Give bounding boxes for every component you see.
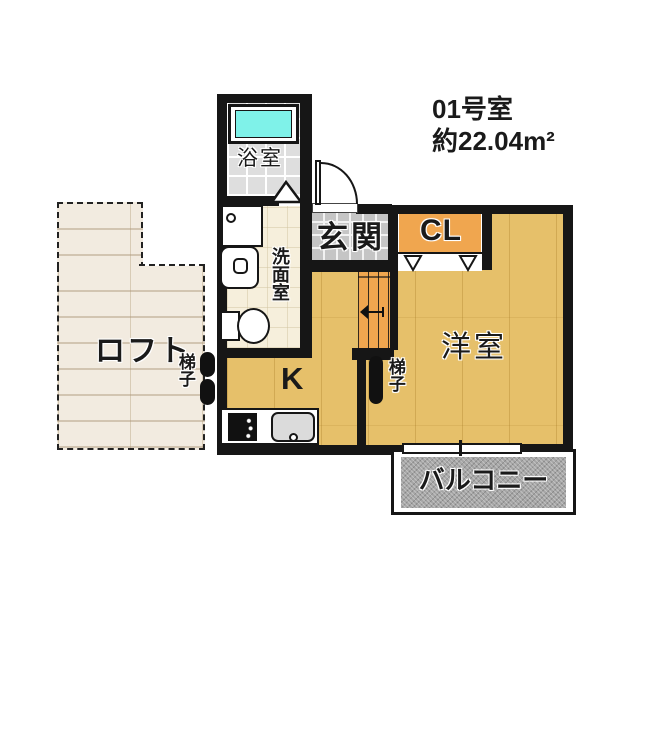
- folding-door-icon: [403, 255, 423, 272]
- wall: [356, 204, 392, 214]
- unit-area: 約22.04m²: [432, 128, 555, 155]
- wall: [357, 358, 366, 445]
- western-room-label: 洋室: [441, 332, 507, 364]
- closet-folding-doors: [398, 252, 482, 271]
- ladder-loft-label: 梯子: [176, 353, 194, 387]
- balcony-label: バルコニー: [405, 467, 562, 494]
- kitchen-counter: [220, 408, 319, 445]
- bathroom-label: 浴室: [237, 148, 283, 170]
- wall: [482, 211, 492, 270]
- entrance-label: 玄関: [317, 222, 385, 255]
- ladder-icon-loft: [200, 352, 215, 377]
- wall: [563, 205, 573, 455]
- loft-floor-upper: [57, 202, 143, 268]
- folding-door-icon: [458, 255, 478, 272]
- ladder-icon-loft: [200, 379, 215, 405]
- entrance-step: [306, 260, 398, 272]
- ladder-room-label: 梯子: [386, 358, 404, 392]
- washbasin-bowl: [233, 258, 248, 274]
- sink-faucet: [289, 433, 298, 442]
- washing-machine: [221, 205, 263, 247]
- bathtub: [228, 104, 299, 144]
- kitchen-label: K: [281, 363, 303, 396]
- loft-border-seam: [139, 264, 205, 266]
- wall: [217, 94, 312, 103]
- wall: [217, 348, 312, 358]
- bathtub-water: [235, 110, 292, 138]
- loft-stair-rung: [358, 276, 390, 278]
- bath-folding-door-icon: [270, 180, 303, 204]
- toilet-bowl: [237, 308, 270, 344]
- wall: [300, 94, 312, 358]
- room-number: 01号室: [432, 96, 513, 123]
- balcony-window-divider: [459, 440, 462, 456]
- balcony-window: [402, 443, 522, 454]
- washbasin: [220, 246, 259, 289]
- washer-knob: [226, 213, 236, 223]
- ladder-icon-room: [369, 356, 383, 404]
- sink: [271, 412, 315, 442]
- floor-plan: 01号室 約22.04m² ロフト 梯子 浴室: [0, 0, 652, 746]
- closet-label: CL: [420, 215, 462, 247]
- stair-direction-arrow: [359, 303, 387, 321]
- stove: [228, 413, 257, 441]
- wall: [217, 445, 404, 455]
- wall: [390, 272, 398, 350]
- washroom-label: 洗面室: [270, 247, 289, 301]
- entrance-door-swing-arc: [321, 162, 358, 204]
